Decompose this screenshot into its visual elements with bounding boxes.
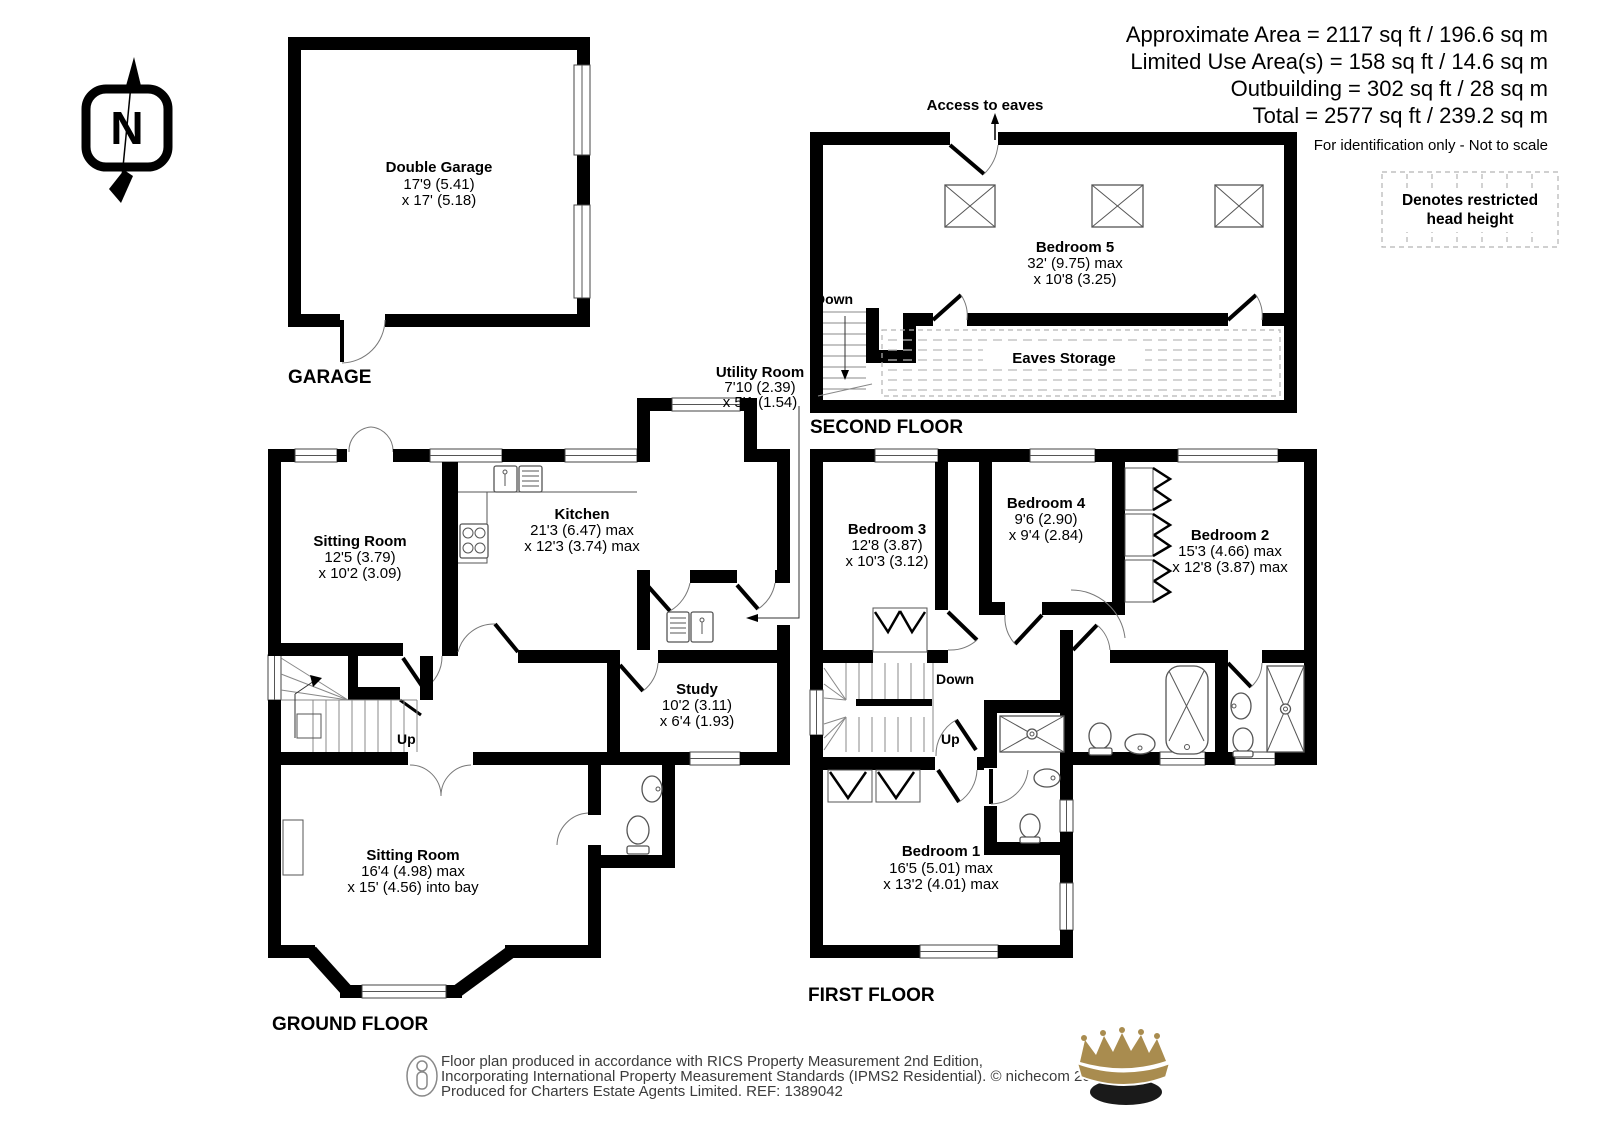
sink-icon xyxy=(1231,693,1251,719)
wardrobe-icon xyxy=(1125,468,1170,510)
toilet-icon xyxy=(1089,723,1112,755)
door-arc xyxy=(643,663,658,691)
door-leaf xyxy=(1073,625,1097,650)
wardrobe-icon xyxy=(1125,514,1170,556)
fireplace-icon xyxy=(283,820,303,875)
eaves-storage-area: Eaves Storage xyxy=(882,330,1280,396)
footer-line-3: Produced for Charters Estate Agents Limi… xyxy=(441,1083,843,1100)
area-line-3: Outbuilding = 302 sq ft / 28 sq m xyxy=(1231,76,1548,101)
bedroom4-dim1: 9'6 (2.90) xyxy=(1015,511,1078,528)
door-arc xyxy=(1005,615,1015,644)
door-leaf xyxy=(1228,295,1256,320)
sink-icon xyxy=(1034,769,1060,787)
sitting-room-2-dim2: x 15' (4.56) into bay xyxy=(347,879,479,896)
bedroom3-dim2: x 10'3 (3.12) xyxy=(846,553,929,570)
french-door-arc xyxy=(371,427,393,452)
stairs-down xyxy=(818,312,872,396)
legend-line-1: Denotes restricted xyxy=(1402,192,1538,209)
eaves-access-door-leaf xyxy=(950,145,984,174)
access-to-eaves-label: Access to eaves xyxy=(927,97,1044,114)
skylight-icon xyxy=(945,185,995,227)
door-leaf xyxy=(938,770,959,802)
second-floor-plan: Access to eaves xyxy=(810,97,1297,438)
kitchen-name: Kitchen xyxy=(554,506,609,523)
toilet-icon xyxy=(1233,728,1253,757)
floorplan-page: Approximate Area = 2117 sq ft / 196.6 sq… xyxy=(0,0,1600,1131)
door-arc xyxy=(991,770,1028,804)
stairs-arrow-icon xyxy=(310,675,322,687)
bath-icon xyxy=(1166,666,1208,754)
first-floor-up-label: Up xyxy=(941,731,960,747)
stairs-down xyxy=(824,663,933,752)
bedroom3-name: Bedroom 3 xyxy=(848,521,926,538)
bedroom2-dim2: x 12'8 (3.87) max xyxy=(1172,559,1288,576)
door-arc xyxy=(1256,295,1262,320)
double-door-arc xyxy=(410,765,441,796)
garage-room-dim2: x 17' (5.18) xyxy=(402,192,477,209)
bedroom1-dim1: 16'5 (5.01) max xyxy=(889,860,993,877)
wardrobe-icon xyxy=(1125,560,1170,602)
bedroom1-dim2: x 13'2 (4.01) max xyxy=(883,876,999,893)
first-floor-plan: Down Up Bedroom 3 12'8 (3.87) x 10'3 (3.… xyxy=(808,449,1317,1006)
area-line-2: Limited Use Area(s) = 158 sq ft / 14.6 s… xyxy=(1130,49,1548,74)
study-dim2: x 6'4 (1.93) xyxy=(660,713,735,730)
first-floor-down-label: Down xyxy=(936,671,974,687)
eaves-access-door-arc xyxy=(984,145,998,174)
cupboard-door-leaf xyxy=(400,700,421,715)
study-name: Study xyxy=(676,681,718,698)
sitting-room-2-dim1: 16'4 (4.98) max xyxy=(361,863,465,880)
north-compass: N xyxy=(86,57,168,203)
shower-icon xyxy=(1267,666,1304,752)
skylight-icon xyxy=(1215,185,1263,227)
bedroom4-dim2: x 9'4 (2.84) xyxy=(1009,527,1084,544)
door-leaf xyxy=(737,585,758,609)
ground-floor-label: GROUND FLOOR xyxy=(272,1014,428,1035)
legend-line-2: head height xyxy=(1427,211,1514,228)
garage-plan: Double Garage 17'9 (5.41) x 17' (5.18) G… xyxy=(288,37,590,388)
bedroom5-name: Bedroom 5 xyxy=(1036,239,1114,256)
door-leaf xyxy=(1015,615,1042,644)
door-leaf xyxy=(933,295,961,320)
area-line-1: Approximate Area = 2117 sq ft / 196.6 sq… xyxy=(1126,22,1548,47)
kitchen-sink-icon xyxy=(494,466,542,492)
wardrobe-icon xyxy=(873,608,927,652)
compass-letter: N xyxy=(110,102,143,154)
door-arc xyxy=(458,624,495,652)
garage-room-dim1: 17'9 (5.41) xyxy=(403,176,474,193)
door-arc xyxy=(948,640,977,650)
shower-icon xyxy=(1000,716,1064,752)
bedroom5-dim2: x 10'8 (3.25) xyxy=(1034,271,1117,288)
footer-attribution: Floor plan produced in accordance with R… xyxy=(407,1027,1170,1105)
bedroom3-dim1: 12'8 (3.87) xyxy=(851,537,922,554)
skylight-icon xyxy=(1092,185,1143,227)
bedroom1-name: Bedroom 1 xyxy=(902,843,980,860)
eaves-storage-label: Eaves Storage xyxy=(1012,350,1115,367)
stairs-up xyxy=(824,717,924,752)
sitting-room-1-dim1: 12'5 (3.79) xyxy=(324,549,395,566)
door-leaf xyxy=(647,585,670,611)
bedroom5-dim1: 32' (9.75) max xyxy=(1027,255,1123,272)
door-arc xyxy=(961,295,967,320)
door-arc xyxy=(670,583,690,611)
garage-door-arc xyxy=(342,320,385,363)
sink-icon xyxy=(1125,734,1155,754)
second-floor-down-label: Down xyxy=(815,291,853,307)
bedroom4-name: Bedroom 4 xyxy=(1007,495,1086,512)
nichecom-crown-logo xyxy=(1077,1027,1170,1105)
sitting-room-1-name: Sitting Room xyxy=(313,533,406,550)
door-arc xyxy=(1097,625,1110,650)
bedroom2-dim1: 15'3 (4.66) max xyxy=(1178,543,1282,560)
garage-floor-label: GARAGE xyxy=(288,367,371,388)
door-leaf xyxy=(1228,663,1251,687)
garage-room-name: Double Garage xyxy=(386,159,493,176)
newel-post xyxy=(297,714,321,738)
double-door-arc xyxy=(441,765,471,796)
door-leaf xyxy=(495,624,518,652)
first-floor-label: FIRST FLOOR xyxy=(808,985,935,1006)
door-arc xyxy=(557,813,588,845)
entrance-arrow-icon xyxy=(746,614,758,622)
door-leaf xyxy=(948,612,977,640)
scale-note: For identification only - Not to scale xyxy=(1314,137,1548,154)
area-line-4: Total = 2577 sq ft / 239.2 sq m xyxy=(1253,103,1548,128)
person-icon xyxy=(407,1056,437,1096)
utility-sink-icon xyxy=(691,612,713,642)
kitchen-dim2: x 12'3 (3.74) max xyxy=(524,538,640,555)
study-dim1: 10'2 (3.11) xyxy=(662,697,732,714)
ground-floor-up-label: Up xyxy=(397,731,416,747)
door-arc xyxy=(758,583,775,609)
toilet-icon xyxy=(1020,814,1040,843)
door-arc xyxy=(1251,663,1262,687)
bedroom2-name: Bedroom 2 xyxy=(1191,527,1269,544)
access-arrow-icon xyxy=(991,113,999,124)
north-arrowhead-icon xyxy=(124,57,142,93)
floorplan-canvas: Approximate Area = 2117 sq ft / 196.6 sq… xyxy=(0,0,1600,1131)
door-arc xyxy=(959,770,977,802)
utility-room-dim2: x 5'1 (1.54) xyxy=(723,394,798,411)
compass-feather-icon xyxy=(109,170,133,203)
sitting-room-1-dim2: x 10'2 (3.09) xyxy=(319,565,402,582)
sink-icon xyxy=(642,776,662,802)
door-leaf xyxy=(620,665,643,691)
restricted-height-legend: Denotes restricted head height xyxy=(1382,172,1558,247)
toilet-icon xyxy=(627,816,649,854)
sitting-room-2-name: Sitting Room xyxy=(366,847,459,864)
wardrobe-icon xyxy=(876,770,920,802)
hob-icon xyxy=(460,524,488,558)
second-floor-label: SECOND FLOOR xyxy=(810,417,963,438)
french-door-arc xyxy=(349,427,371,452)
wardrobe-icon xyxy=(828,770,872,802)
ground-floor-plan: Up Sitting Room xyxy=(268,364,804,1035)
kitchen-dim1: 21'3 (6.47) max xyxy=(530,522,634,539)
washer-icon xyxy=(667,612,689,642)
